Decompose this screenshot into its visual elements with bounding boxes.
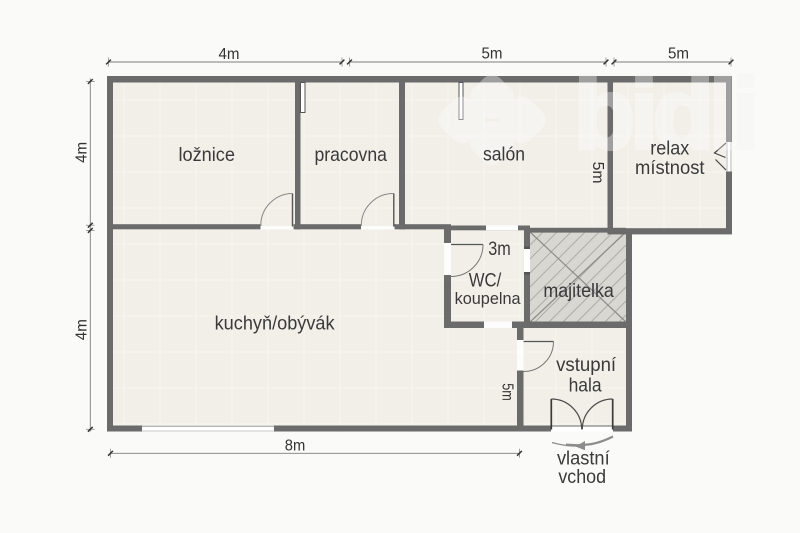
svg-text:5m: 5m: [482, 46, 503, 63]
svg-text:4m: 4m: [74, 142, 91, 163]
svg-text:3m: 3m: [488, 238, 511, 260]
svg-text:ložnice: ložnice: [178, 144, 235, 166]
svg-text:5m: 5m: [499, 383, 516, 401]
svg-text:salón: salón: [483, 144, 525, 166]
svg-text:vstupní: vstupní: [556, 354, 617, 376]
svg-text:4m: 4m: [74, 319, 91, 340]
svg-text:5m: 5m: [668, 46, 689, 63]
svg-text:8m: 8m: [285, 438, 306, 455]
svg-text:4m: 4m: [219, 46, 240, 63]
svg-text:koupelna: koupelna: [455, 289, 522, 308]
svg-text:pracovna: pracovna: [314, 144, 387, 166]
svg-text:kuchyň/obývák: kuchyň/obývák: [215, 313, 335, 335]
svg-text:místnost: místnost: [635, 157, 705, 179]
svg-text:hala: hala: [569, 374, 602, 396]
svg-text:majitelka: majitelka: [543, 280, 614, 302]
svg-text:5m: 5m: [589, 162, 606, 184]
svg-text:vchod: vchod: [558, 466, 606, 488]
